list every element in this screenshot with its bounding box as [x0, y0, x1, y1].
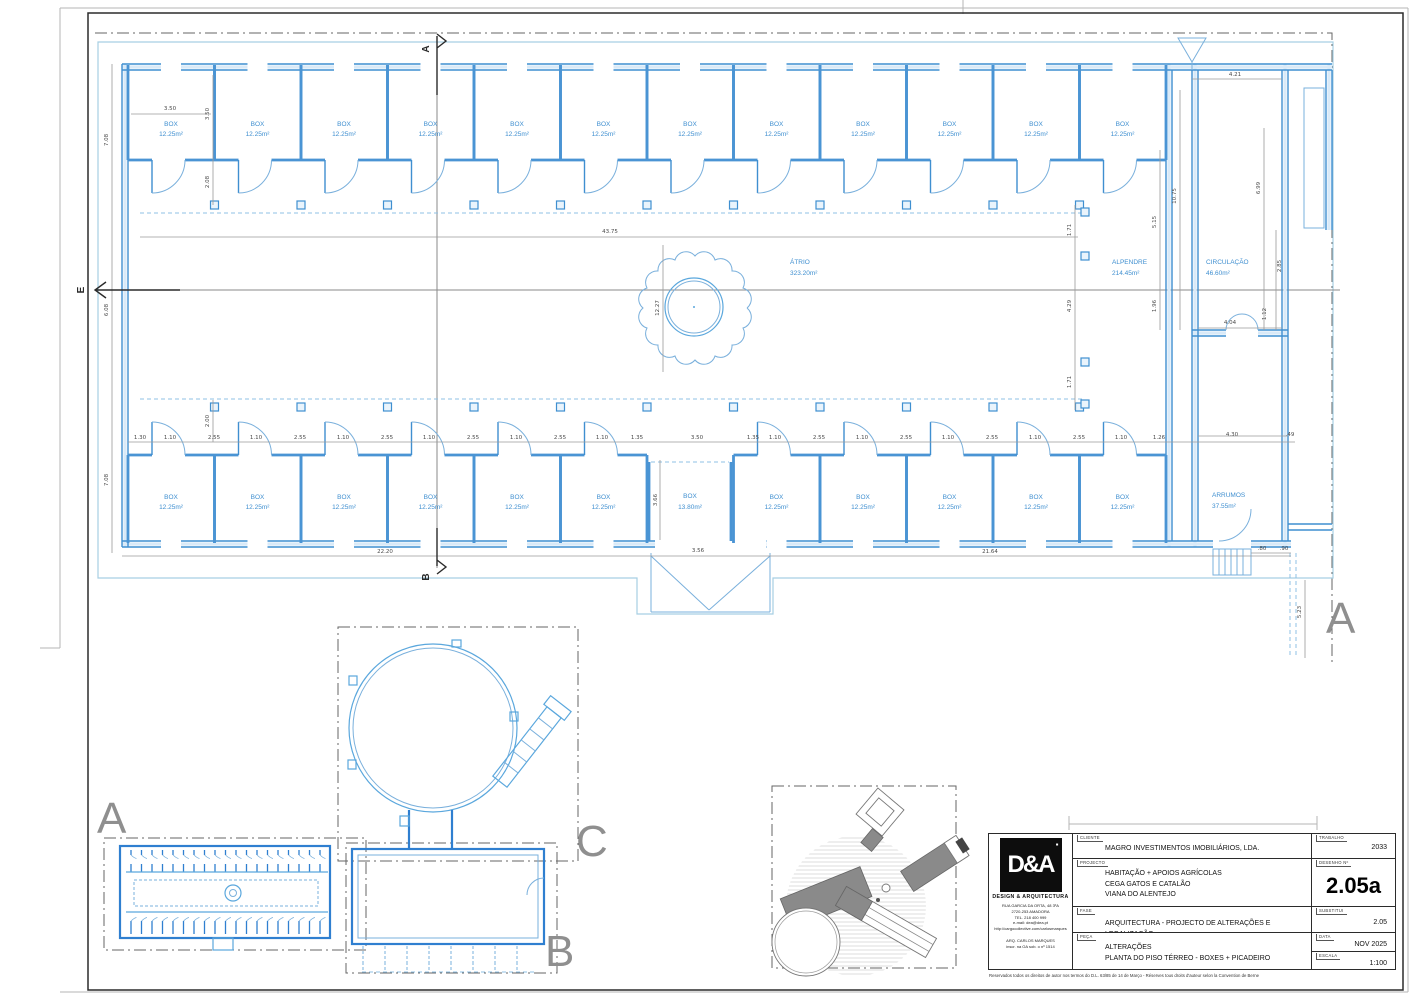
drawing-number-tag: DESENHO Nº [1316, 860, 1351, 867]
dim-label: 2.55 [900, 435, 913, 441]
project-line: CEGA GATOS E CATALÃO [1105, 880, 1307, 891]
dim-label: 2.55 [467, 435, 480, 441]
drawing-sheet: BOX 12.25m² BOX 12.25m² [0, 0, 1414, 1000]
section-marker-b: B [421, 573, 432, 580]
dim-label: 1.10 [1029, 435, 1042, 441]
room-label: ARRUMOS [1212, 492, 1246, 499]
titleblock-main: CLIENTE MAGRO INVESTIMENTOS IMOBILIÁRIOS… [1073, 834, 1311, 969]
dim-label: 43.75 [602, 229, 618, 235]
room-area: 37.55m² [1212, 503, 1237, 510]
project-field: PROJECTO HABITAÇÃO + APOIOS AGRÍCOLAS CE… [1073, 859, 1311, 907]
dim-label: 6.08 [104, 303, 110, 316]
section-marker-e: E [76, 286, 87, 293]
supersedes-field: SUBSTITUI 2.05 [1312, 907, 1395, 933]
dim-label: 2.55 [986, 435, 999, 441]
client-field: CLIENTE MAGRO INVESTIMENTOS IMOBILIÁRIOS… [1073, 834, 1311, 859]
work-number-field: TRABALHO 2033 [1312, 834, 1395, 859]
site-plan [772, 786, 972, 976]
dim-label: 4.04 [1224, 320, 1237, 326]
dim-label: 1.26 [1153, 435, 1166, 441]
room-area: 46.60m² [1206, 270, 1231, 277]
dim-label: 3.56 [692, 548, 705, 554]
dim-label: 1.10 [942, 435, 955, 441]
dim-label: 1.10 [164, 435, 177, 441]
scale-value: 1:100 [1316, 960, 1391, 967]
dim-label: 5.23 [1297, 605, 1303, 618]
firm-logo-dot: ▪ [1056, 840, 1059, 849]
keyplan-letter-a: A [97, 797, 126, 841]
room-label: CIRCULAÇÃO [1206, 257, 1249, 266]
dim-label: 1.10 [250, 435, 263, 441]
firm-address: RUA GARCIA DA ORTA, 48 3ºA 2720-253 AMAD… [989, 903, 1072, 932]
piece-field: PEÇA ALTERAÇÕES PLANTA DO PISO TÉRREO - … [1073, 933, 1311, 969]
firm-name: DESIGN & ARQUITECTURA [989, 894, 1072, 900]
phase-field: FASE ARQUITECTURA - PROJECTO DE ALTERAÇÕ… [1073, 907, 1311, 933]
room-label: ALPENDRE [1112, 259, 1148, 266]
property-boundary [95, 33, 1332, 665]
dim-label: 2.55 [554, 435, 567, 441]
dimension-lines [112, 64, 1305, 658]
dim-label: 1.96 [1152, 299, 1158, 312]
project-line: HABITAÇÃO + APOIOS AGRÍCOLAS [1105, 869, 1307, 880]
site-building-right [901, 833, 973, 891]
dim-label: 2.00 [205, 414, 211, 427]
dim-label: 1.30 [134, 435, 147, 441]
firm-address-line: http://cargocollective.com/carlosmarques [989, 926, 1072, 932]
stairs [1213, 549, 1251, 575]
keyplan-letter-b: B [545, 930, 574, 974]
dim-label: 2.55 [208, 435, 221, 441]
dim-label: 2.55 [294, 435, 307, 441]
piece-line: PLANTA DO PISO TÉRREO - BOXES + PICADEIR… [1105, 954, 1307, 965]
title-block: D&A ▪ DESIGN & ARQUITECTURA RUA GARCIA D… [988, 833, 1396, 970]
floor-plan: BOX 13.80m² [76, 34, 1340, 658]
dim-label: 4.29 [1067, 299, 1073, 312]
firm-panel: D&A ▪ DESIGN & ARQUITECTURA RUA GARCIA D… [989, 834, 1073, 969]
picadeiro-circle [348, 640, 571, 849]
piece-tag: PEÇA [1077, 934, 1096, 941]
room-area: 323.20m² [790, 270, 818, 277]
dim-label: 3.66 [653, 493, 659, 506]
exterior-walls [122, 38, 1332, 655]
dim-label: 1.10 [423, 435, 436, 441]
dim-label: 10.75 [1172, 188, 1178, 204]
entrance-canopy [651, 553, 770, 612]
dim-label: 1.10 [856, 435, 869, 441]
work-number-tag: TRABALHO [1316, 835, 1347, 842]
dim-label: 1.10 [596, 435, 609, 441]
dim-label: 2.55 [1073, 435, 1086, 441]
work-number-value: 2033 [1316, 844, 1391, 851]
dim-label: 1.35 [631, 435, 644, 441]
dim-label: 22.20 [377, 549, 393, 555]
supersedes-value: 2.05 [1316, 919, 1391, 926]
room-area: 13.80m² [678, 504, 703, 511]
phase-value: ARQUITECTURA - PROJECTO DE ALTERAÇÕES E … [1105, 919, 1307, 933]
room-area: 214.45m² [1112, 270, 1140, 277]
dim-label: 2.08 [205, 175, 211, 188]
dim-label: .80 [1258, 546, 1267, 552]
project-line: VIANA DO ALENTEJO [1105, 890, 1307, 901]
date-tag: DATA [1316, 934, 1334, 941]
dim-label: 4.21 [1229, 72, 1241, 78]
dim-label: 7.08 [104, 133, 110, 146]
alpendre-edge [140, 213, 1085, 399]
bottom-box-row: BOX 13.80m² [128, 422, 1166, 543]
site-tower [856, 788, 904, 836]
dim-label: 2.55 [381, 435, 394, 441]
keyplan-stables [120, 846, 330, 950]
firm-logo-text: D&A [1008, 851, 1054, 879]
dim-label: 3.50 [691, 435, 704, 441]
dim-label: 1.71 [1067, 376, 1073, 388]
columns [211, 201, 1090, 411]
date-value: NOV 2025 [1316, 941, 1391, 948]
keyplan-letter-c: C [576, 820, 608, 864]
section-marker-a: A [421, 45, 432, 52]
key-plan [104, 627, 578, 973]
dim-label: 1.10 [1115, 435, 1128, 441]
firm-architect: ARQ. CARLOS MARQUES inscr. na OA sob. o … [989, 938, 1072, 950]
dim-label: 2.85 [1277, 259, 1283, 272]
client-tag: CLIENTE [1077, 835, 1103, 842]
drawing-number-value: 2.05a [1316, 873, 1391, 899]
dim-label: 4.30 [1226, 432, 1239, 438]
room-label: BOX [683, 493, 697, 500]
titleblock-right: TRABALHO 2033 DESENHO Nº 2.05a SUBSTITUI… [1311, 834, 1395, 969]
dim-label: .49 [1286, 432, 1295, 438]
copyright-note: Reservados todos os direitos de autor no… [989, 973, 1409, 978]
keyplan-building-b [352, 849, 544, 972]
dim-label: 3.50 [164, 106, 177, 112]
phase-tag: FASE [1077, 908, 1095, 915]
section-letter-a-right: A [1326, 597, 1355, 641]
dim-label: 21.64 [982, 549, 998, 555]
dim-label: 1.10 [769, 435, 782, 441]
date-field: DATA NOV 2025 [1312, 933, 1395, 952]
dim-label: 1.35 [747, 435, 760, 441]
firm-architect-line: inscr. na OA sob. o nº 1514 [989, 944, 1072, 950]
dim-label: 1.71 [1067, 224, 1073, 236]
scale-tag: ESCALA [1316, 953, 1340, 960]
dim-label: 3.50 [205, 107, 211, 120]
viewport-boundary [98, 42, 1333, 614]
top-box-row [128, 65, 1166, 193]
piece-line: ALTERAÇÕES [1105, 943, 1307, 954]
dim-label: 6.99 [1256, 181, 1262, 194]
room-label: ÁTRIO [790, 257, 810, 266]
drawing-number-field: DESENHO Nº 2.05a [1312, 859, 1395, 907]
dim-label: 1.10 [510, 435, 523, 441]
dim-label: .90 [1280, 546, 1289, 552]
site-picadeiro [772, 908, 840, 976]
client-value: MAGRO INVESTIMENTOS IMOBILIÁRIOS, LDA. [1105, 844, 1307, 855]
dim-label: 5.15 [1152, 215, 1158, 228]
dim-label: 2.55 [813, 435, 826, 441]
supersedes-tag: SUBSTITUI [1316, 908, 1347, 915]
dim-label: 1.12 [1262, 308, 1268, 320]
dim-label: 7.08 [104, 473, 110, 486]
dim-label: 1.10 [337, 435, 350, 441]
dim-label: 12.27 [655, 300, 661, 316]
large-box: BOX 13.80m² [649, 462, 731, 541]
project-tag: PROJECTO [1077, 860, 1108, 867]
scale-field: ESCALA 1:100 [1312, 952, 1395, 969]
firm-logo: D&A ▪ [1000, 838, 1062, 892]
